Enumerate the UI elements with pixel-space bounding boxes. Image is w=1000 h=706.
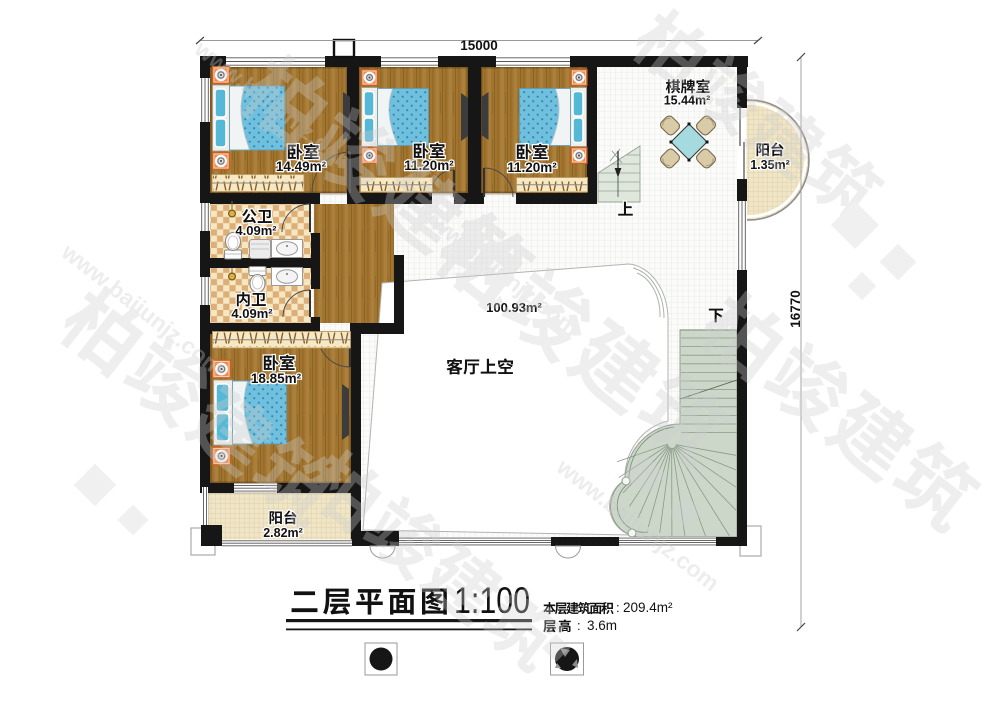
svg-text:209.4m²: 209.4m² — [623, 600, 673, 615]
svg-text:4.09m²: 4.09m² — [235, 223, 277, 238]
svg-text:18.85m²: 18.85m² — [251, 371, 302, 386]
svg-text:16770: 16770 — [788, 290, 803, 328]
svg-text:3.6m: 3.6m — [587, 618, 617, 633]
svg-text:15000: 15000 — [460, 38, 498, 53]
svg-text:4.09m²: 4.09m² — [231, 306, 273, 321]
svg-text::: : — [616, 600, 620, 615]
svg-text:2.82m²: 2.82m² — [263, 526, 303, 540]
svg-text:11.20m²: 11.20m² — [507, 160, 557, 175]
svg-text::: : — [577, 618, 581, 633]
